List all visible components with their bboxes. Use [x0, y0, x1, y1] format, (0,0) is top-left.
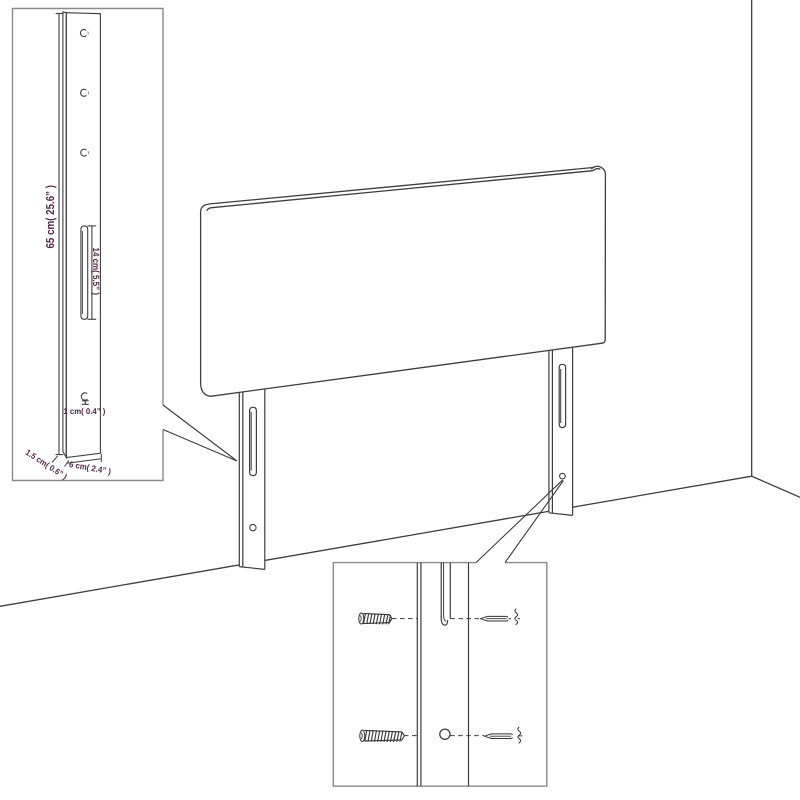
svg-text:14 cm( 5.5” ): 14 cm( 5.5” ): [91, 248, 101, 296]
svg-text:65 cm( 25.6” ): 65 cm( 25.6” ): [45, 185, 57, 249]
svg-text:1 cm( 0.4” ): 1 cm( 0.4” ): [63, 406, 105, 416]
